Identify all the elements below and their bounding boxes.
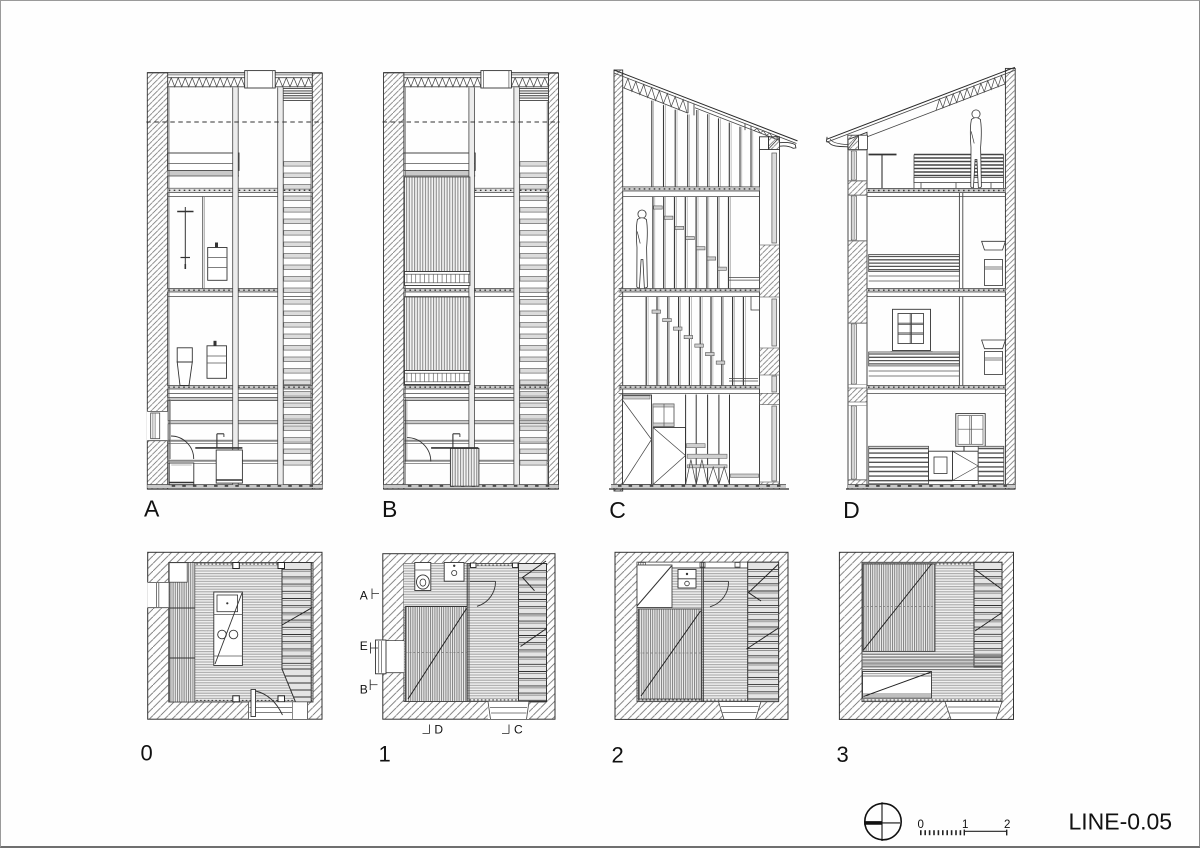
svg-text:1: 1 bbox=[962, 819, 968, 831]
svg-text:0: 0 bbox=[918, 819, 924, 831]
svg-text:2: 2 bbox=[612, 743, 624, 768]
svg-text:D: D bbox=[434, 722, 443, 736]
svg-text:1: 1 bbox=[379, 742, 391, 767]
svg-text:D: D bbox=[843, 497, 860, 523]
svg-text:B: B bbox=[360, 682, 368, 696]
svg-text:0: 0 bbox=[141, 741, 153, 766]
svg-text:LINE-0.05: LINE-0.05 bbox=[1069, 809, 1173, 835]
svg-text:B: B bbox=[382, 496, 397, 522]
svg-text:3: 3 bbox=[837, 742, 849, 767]
svg-text:A: A bbox=[360, 589, 368, 603]
svg-text:2: 2 bbox=[1004, 819, 1010, 831]
svg-text:A: A bbox=[144, 496, 160, 522]
svg-text:C: C bbox=[609, 497, 626, 523]
svg-text:C: C bbox=[514, 722, 523, 736]
svg-text:E: E bbox=[360, 639, 368, 653]
